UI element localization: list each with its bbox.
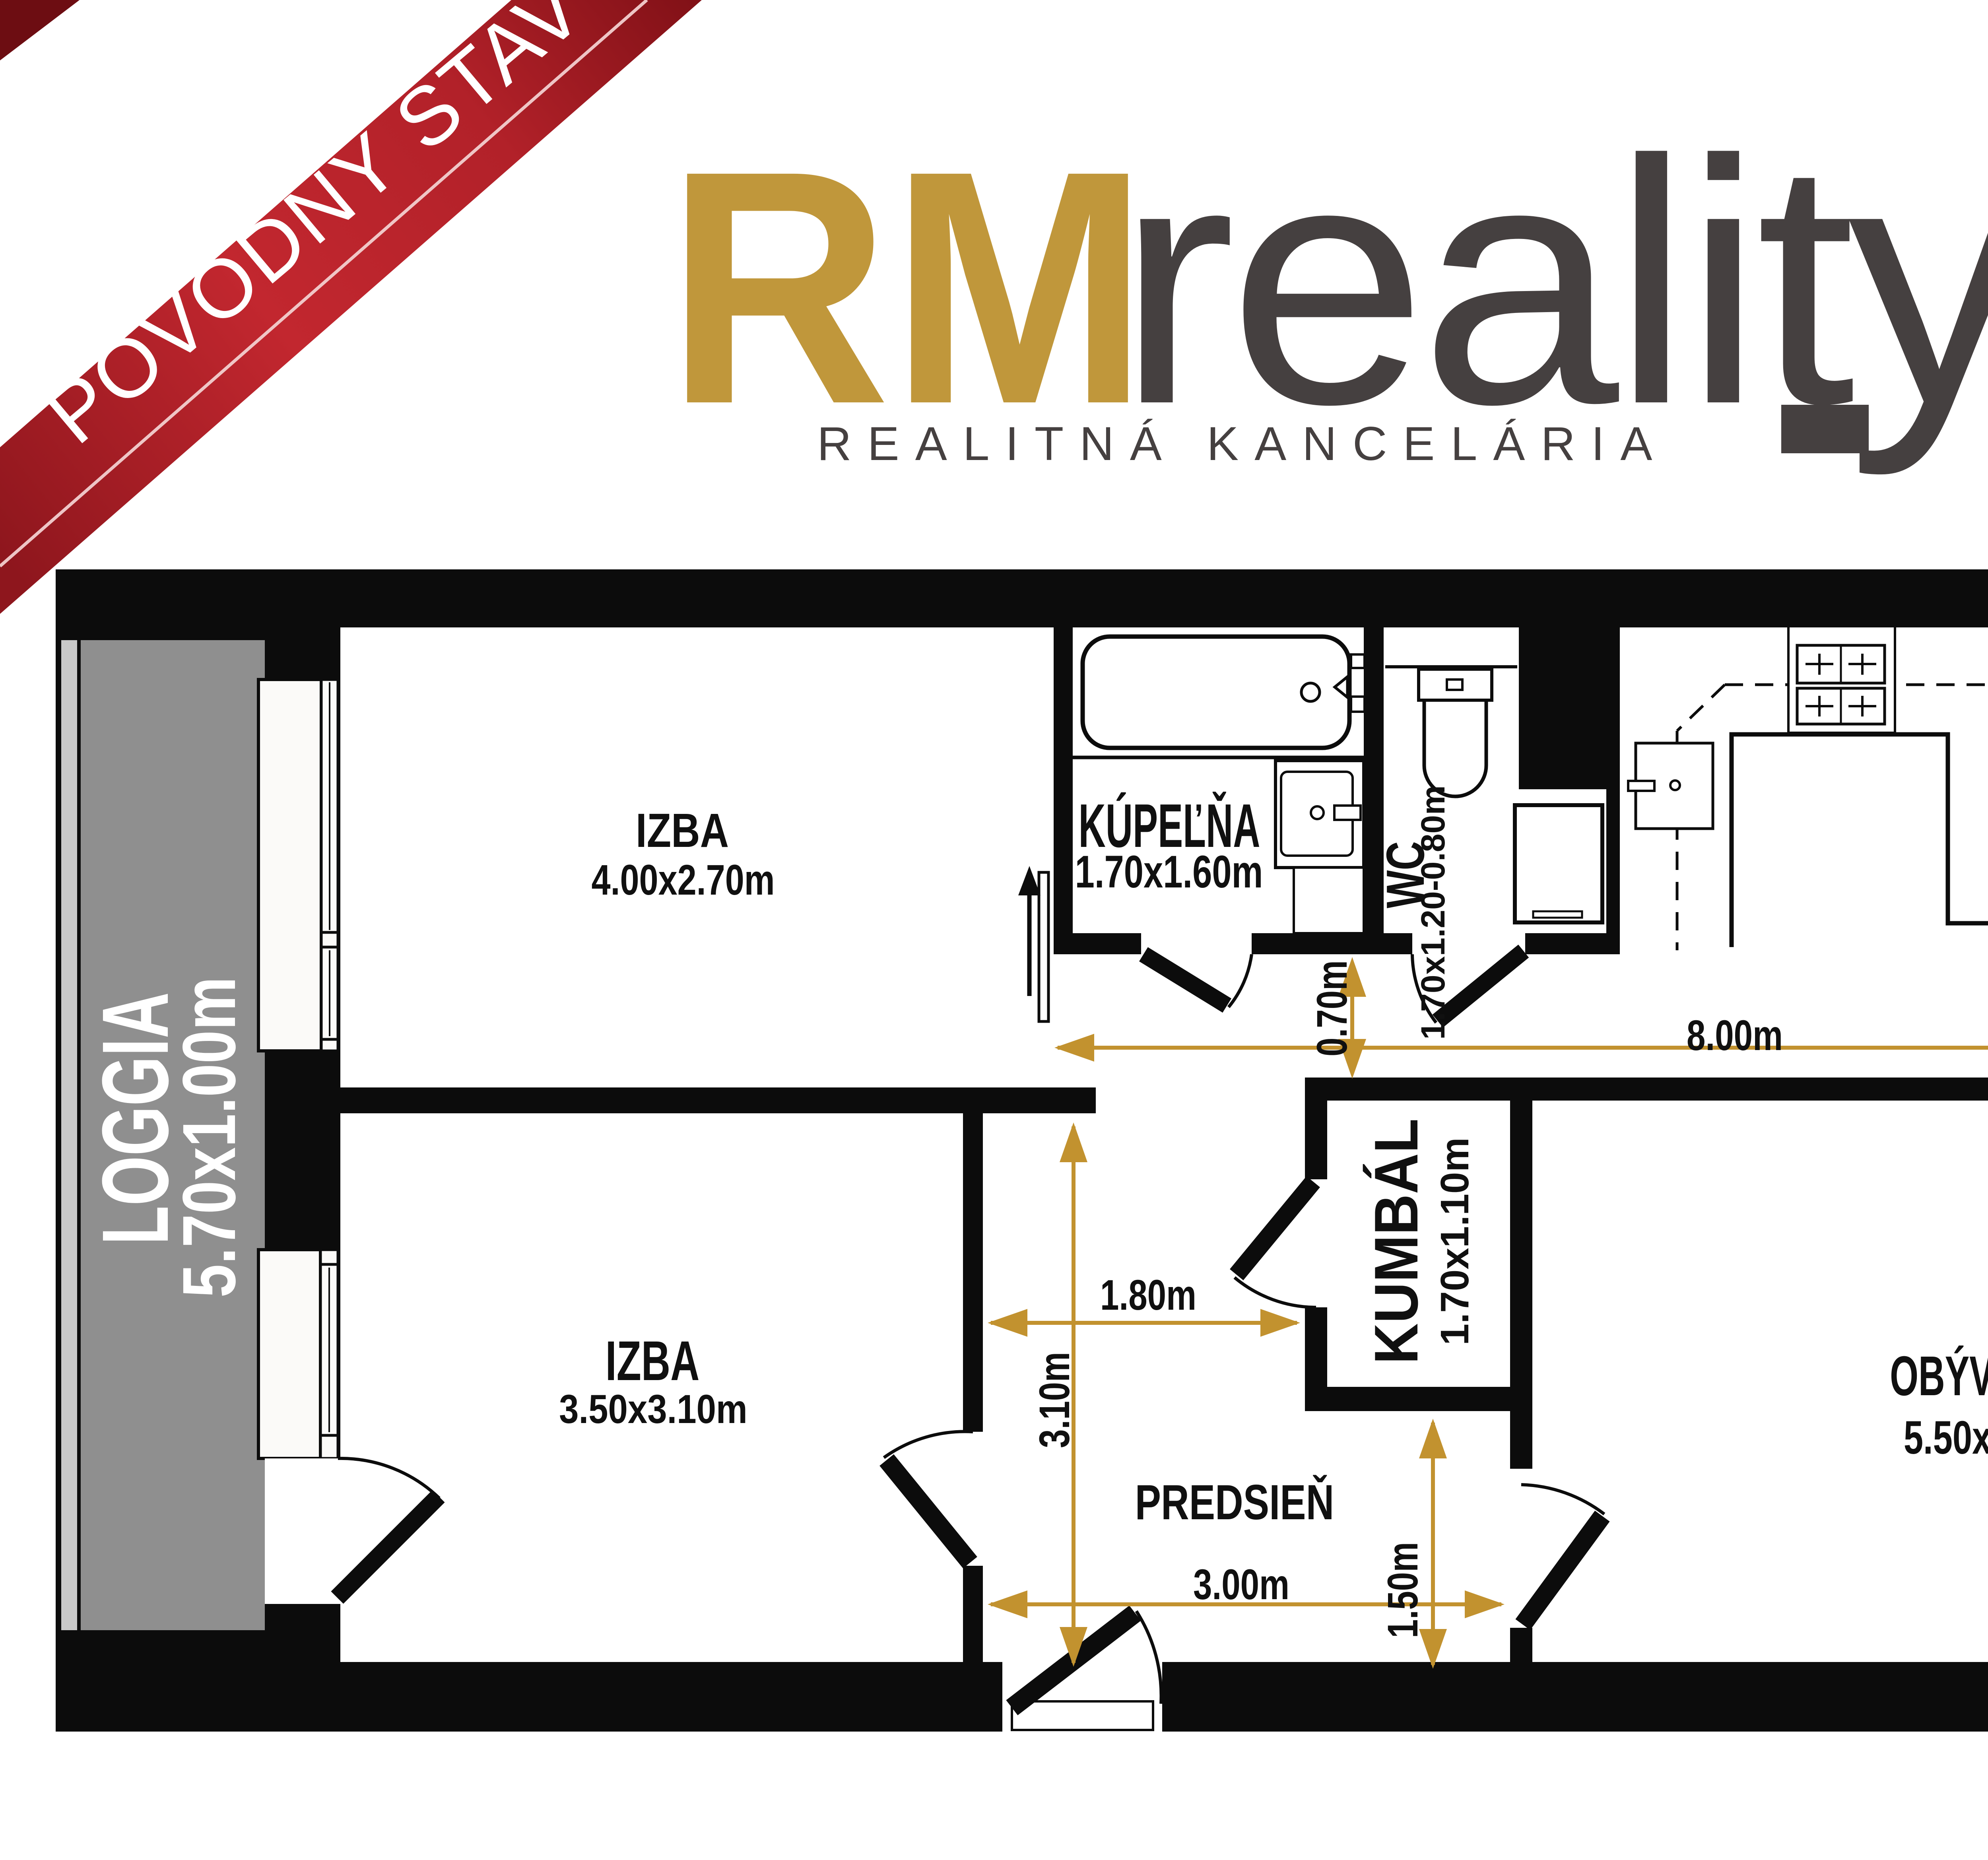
svg-text:IZBA: IZBA <box>606 1330 700 1392</box>
svg-text:3.50x3.10m: 3.50x3.10m <box>559 1386 747 1432</box>
svg-text:PREDSIEŇ: PREDSIEŇ <box>1135 1475 1334 1530</box>
svg-text:1.70x1.10m: 1.70x1.10m <box>1432 1137 1477 1345</box>
svg-text:5.70x1.00m: 5.70x1.00m <box>167 977 251 1298</box>
svg-text:1.50m: 1.50m <box>1378 1542 1427 1638</box>
svg-text:1.70x1.60m: 1.70x1.60m <box>1075 846 1263 897</box>
svg-text:4.00x2.70m: 4.00x2.70m <box>591 856 775 904</box>
svg-text:IZBA: IZBA <box>636 803 729 857</box>
svg-text:1.80m: 1.80m <box>1100 1271 1196 1319</box>
svg-text:REALITNÁ KANCELÁRIA: REALITNÁ KANCELÁRIA <box>817 417 1668 470</box>
svg-text:8.00m: 8.00m <box>1687 1011 1783 1059</box>
svg-text:3.10m: 3.10m <box>1030 1352 1078 1448</box>
svg-text:5.50x3.30m: 5.50x3.30m <box>1904 1412 1988 1464</box>
svg-text:0.70m: 0.70m <box>1308 960 1356 1056</box>
svg-text:3.00m: 3.00m <box>1193 1560 1289 1608</box>
svg-text:KUMBÁL: KUMBÁL <box>1361 1118 1431 1364</box>
svg-text:OBÝVAČKA: OBÝVAČKA <box>1890 1345 1988 1407</box>
svg-text:1.70x1.20-0.80m: 1.70x1.20-0.80m <box>1414 785 1452 1040</box>
